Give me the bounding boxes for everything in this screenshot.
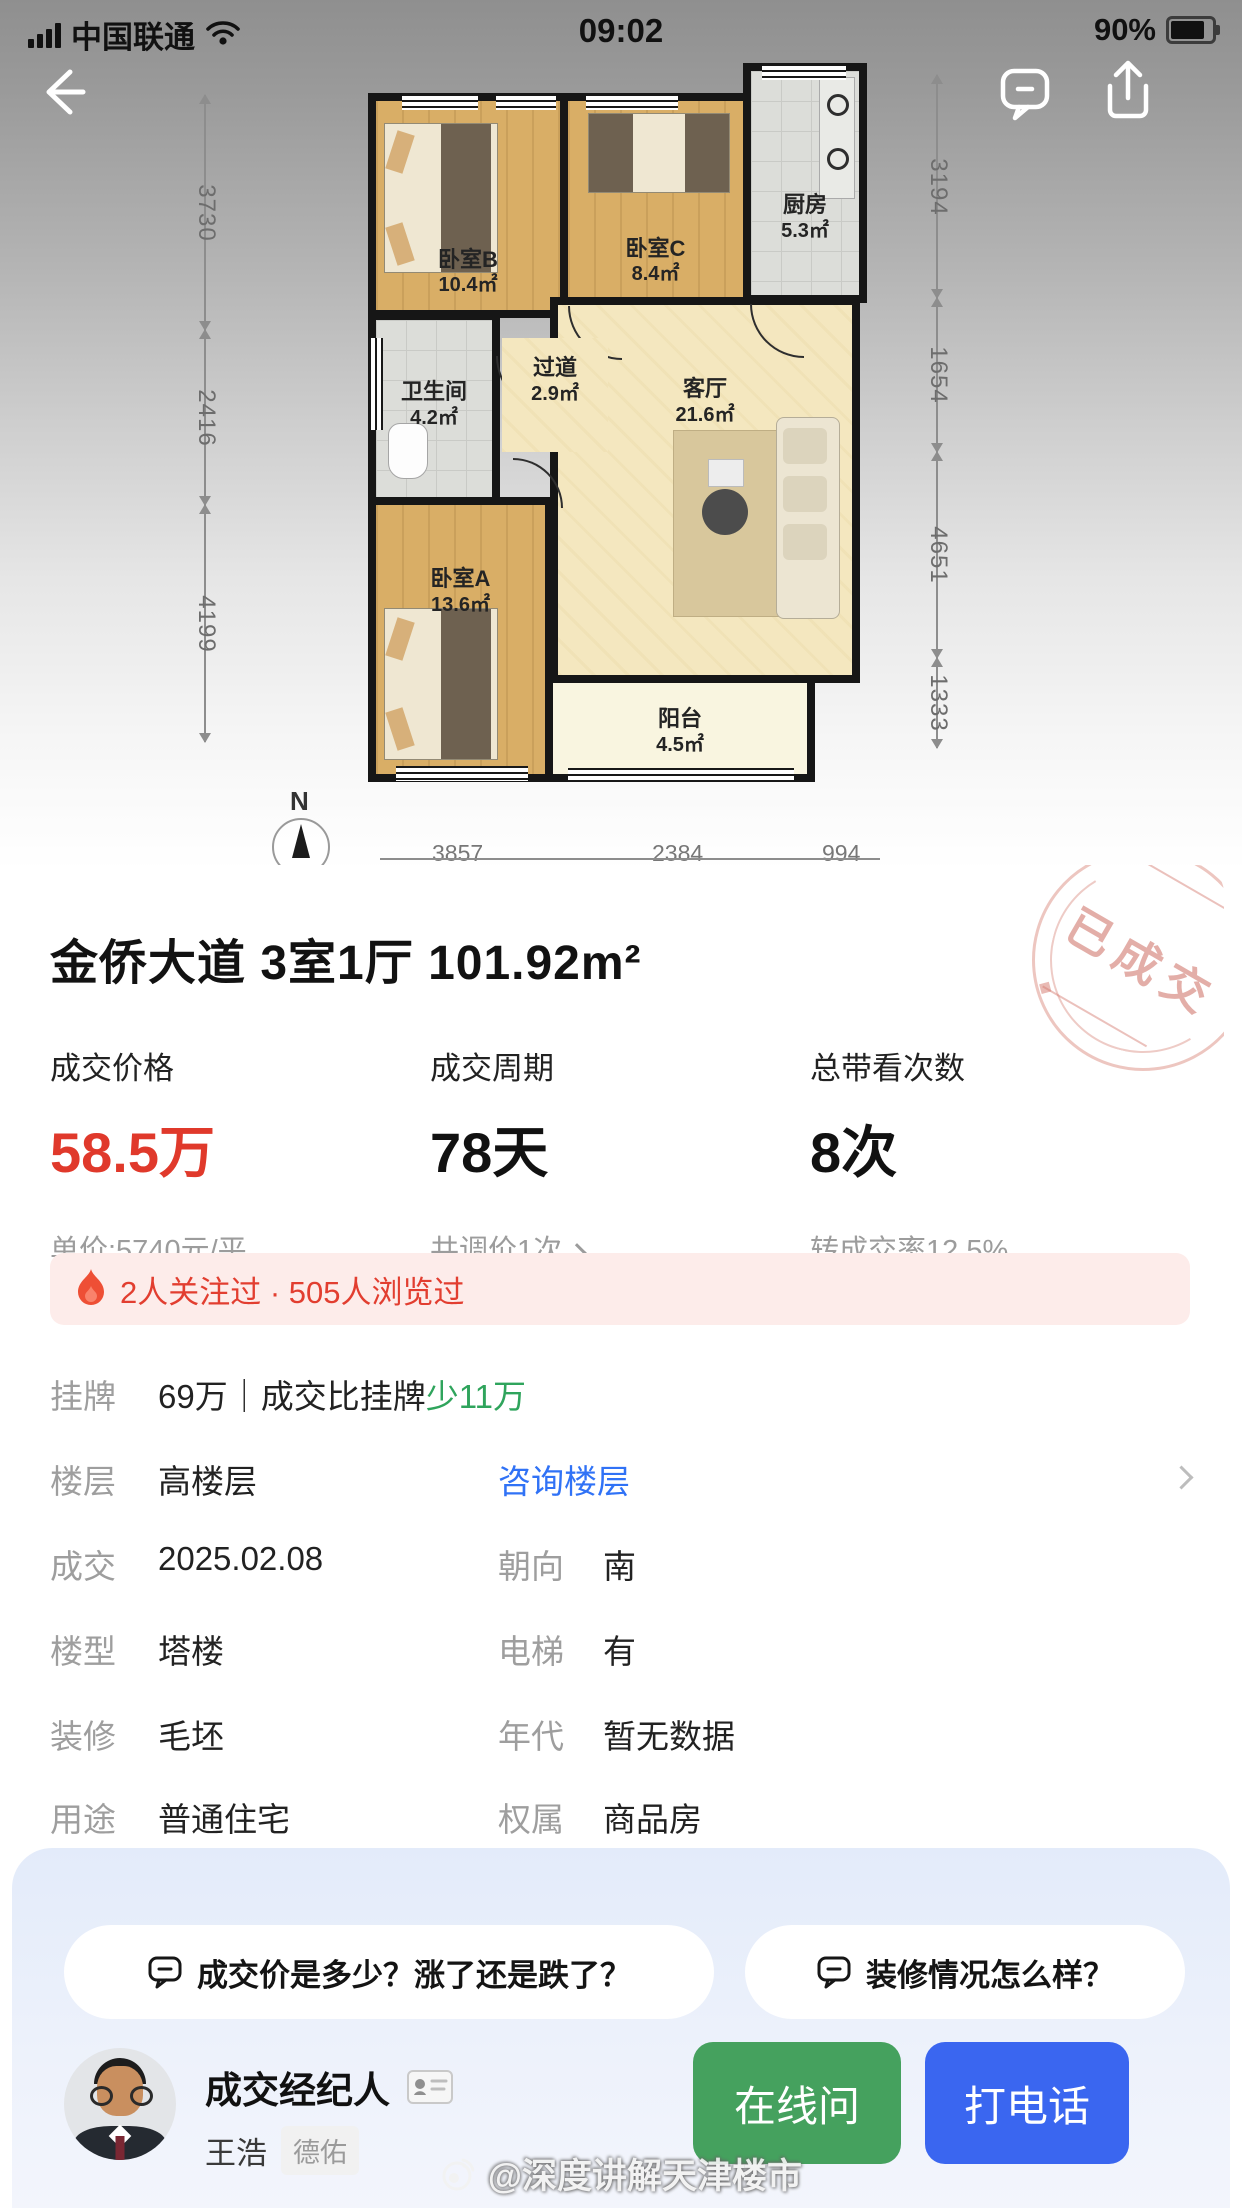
- speech-bubble-icon: [147, 1954, 183, 1990]
- cushion: [783, 476, 827, 512]
- furniture: [685, 114, 729, 192]
- window: [402, 94, 478, 110]
- agent-role-label: 成交经纪人: [205, 2060, 390, 2114]
- listing-title: 金侨大道 3室1厅 101.92m²: [50, 923, 642, 993]
- coffee-table: [702, 489, 748, 535]
- room-label: 卧室C8.4㎡: [568, 235, 743, 288]
- dim-bottom-1: 3857: [432, 840, 483, 867]
- tray: [708, 459, 744, 487]
- dim-right-2: 1654: [936, 298, 938, 452]
- agent-name-row: 王浩 德佑: [205, 2126, 359, 2175]
- dim-right-3: 4651: [936, 452, 938, 658]
- window: [369, 338, 383, 430]
- room-label: 厨房5.3㎡: [751, 191, 859, 244]
- speech-bubble-icon: [816, 1954, 852, 1990]
- agent-company-badge: 德佑: [281, 2126, 359, 2175]
- consult-floor-link[interactable]: 咨询楼层: [498, 1455, 630, 1503]
- stove: [819, 77, 855, 199]
- screen: 中国联通 09:02 90% 卧室B10.4㎡: [0, 0, 1242, 2208]
- info-row-floor: 楼层 高楼层 咨询楼层: [50, 1455, 1192, 1499]
- wifi-icon: [205, 18, 241, 51]
- avatar-glasses: [90, 2086, 113, 2106]
- agent-name: 王浩: [205, 2128, 267, 2173]
- dim-right-1: 3194: [936, 75, 938, 298]
- flame-icon: [76, 1268, 106, 1311]
- agent-role-row: 成交经纪人: [205, 2060, 454, 2114]
- agent-avatar[interactable]: [64, 2048, 176, 2160]
- id-card-icon: [406, 2067, 454, 2107]
- info-row-deal-date: 成交 2025.02.08 朝向 南: [50, 1540, 1192, 1584]
- window: [496, 94, 556, 110]
- room-label: 过道2.9㎡: [502, 354, 608, 407]
- sold-stamp: 已成交: [1021, 865, 1224, 1082]
- chevron-right-icon[interactable]: [1169, 1465, 1193, 1489]
- bottom-panel: 成交价是多少？涨了还是跌了？ 装修情况怎么样？ 成交经纪人 王浩 德佑: [12, 1848, 1230, 2208]
- room-bathroom: 卫生间4.2㎡: [368, 312, 500, 505]
- listing-price-diff: 少11万: [426, 1378, 526, 1415]
- room-bedroom-b: 卧室B10.4㎡: [368, 93, 568, 318]
- cushion: [783, 428, 827, 464]
- avatar-tie: [116, 2136, 125, 2160]
- weibo-icon: [440, 2155, 478, 2193]
- question-chip-price[interactable]: 成交价是多少？涨了还是跌了？: [64, 1925, 714, 2019]
- battery-percent-label: 90%: [1094, 12, 1156, 48]
- room-hallway: 过道2.9㎡: [502, 338, 608, 452]
- stat-deal-price: 成交价格 58.5万 单价:5740元/平: [50, 1043, 247, 1269]
- signal-icon: [28, 22, 61, 48]
- carrier-label: 中国联通: [71, 12, 195, 57]
- dim-bottom-3: 994: [822, 840, 860, 867]
- listing-card: 已成交 金侨大道 3室1厅 101.92m² 成交价格 58.5万 单价:574…: [18, 865, 1224, 1857]
- watermark-text: @深度讲解天津楼市: [488, 2148, 802, 2199]
- back-button[interactable]: [36, 62, 96, 127]
- floorplan: 卧室B10.4㎡ 卧室C8.4㎡ 厨房5.3㎡ 卫生间4.2㎡: [250, 38, 900, 818]
- furniture: [441, 609, 491, 759]
- room-label: 卧室A13.6㎡: [376, 565, 545, 618]
- room-bedroom-c: 卧室C8.4㎡: [560, 93, 751, 305]
- room-bedroom-a: 卧室A13.6㎡: [368, 497, 553, 782]
- dim-bottom-2: 2384: [652, 840, 703, 867]
- watermark: @深度讲解天津楼市: [440, 2148, 802, 2199]
- furniture: [589, 114, 633, 192]
- window: [396, 766, 528, 781]
- furniture: [385, 130, 414, 174]
- dim-left-2: 2416: [204, 330, 206, 505]
- notice-text: 2人关注过 · 505人浏览过: [120, 1267, 465, 1312]
- window: [586, 94, 678, 110]
- dim-bottom-line: [380, 858, 880, 860]
- burner: [827, 148, 849, 170]
- call-button[interactable]: 打电话: [925, 2042, 1129, 2164]
- info-row-building-type: 楼型 塔楼 电梯 有: [50, 1625, 1192, 1669]
- stat-deal-cycle: 成交周期 78天 共调价1次: [430, 1043, 584, 1269]
- toilet: [388, 423, 428, 479]
- furniture: [385, 707, 414, 751]
- furniture: [588, 113, 730, 193]
- furniture: [385, 617, 414, 661]
- room-label: 阳台4.5㎡: [553, 705, 807, 758]
- comment-button[interactable]: [994, 62, 1056, 129]
- info-row-usage: 用途 普通住宅 权属 商品房: [50, 1793, 1192, 1837]
- dim-right-4: 1333: [936, 658, 938, 748]
- room-label: 卫生间4.2㎡: [376, 378, 492, 431]
- compass-n-label: N: [290, 786, 309, 817]
- window: [762, 64, 846, 80]
- dim-left-3: 4199: [204, 505, 206, 742]
- cushion: [783, 524, 827, 560]
- notice-banner: 2人关注过 · 505人浏览过: [50, 1253, 1190, 1325]
- dim-left-1: 3730: [204, 95, 206, 330]
- room-kitchen: 厨房5.3㎡: [743, 63, 867, 303]
- sofa: [776, 417, 840, 619]
- online-ask-button[interactable]: 在线问: [693, 2042, 901, 2164]
- info-row-decoration: 装修 毛坯 年代 暂无数据: [50, 1710, 1192, 1754]
- listing-price-row: 挂牌 69万｜成交比挂牌少11万: [50, 1370, 1192, 1414]
- listing-price-value: 69万｜成交比挂牌: [158, 1378, 426, 1415]
- window: [568, 768, 794, 781]
- room-balcony: 阳台4.5㎡: [545, 675, 815, 782]
- burner: [827, 94, 849, 116]
- room-label: 卧室B10.4㎡: [376, 246, 560, 299]
- furniture: [384, 608, 498, 760]
- question-chip-decoration[interactable]: 装修情况怎么样？: [745, 1925, 1185, 2019]
- battery-icon: [1166, 16, 1216, 44]
- stat-showings: 总带看次数 8次 转成交率12.5%: [810, 1043, 1008, 1269]
- share-button[interactable]: [1096, 58, 1160, 129]
- avatar-glasses: [130, 2086, 153, 2106]
